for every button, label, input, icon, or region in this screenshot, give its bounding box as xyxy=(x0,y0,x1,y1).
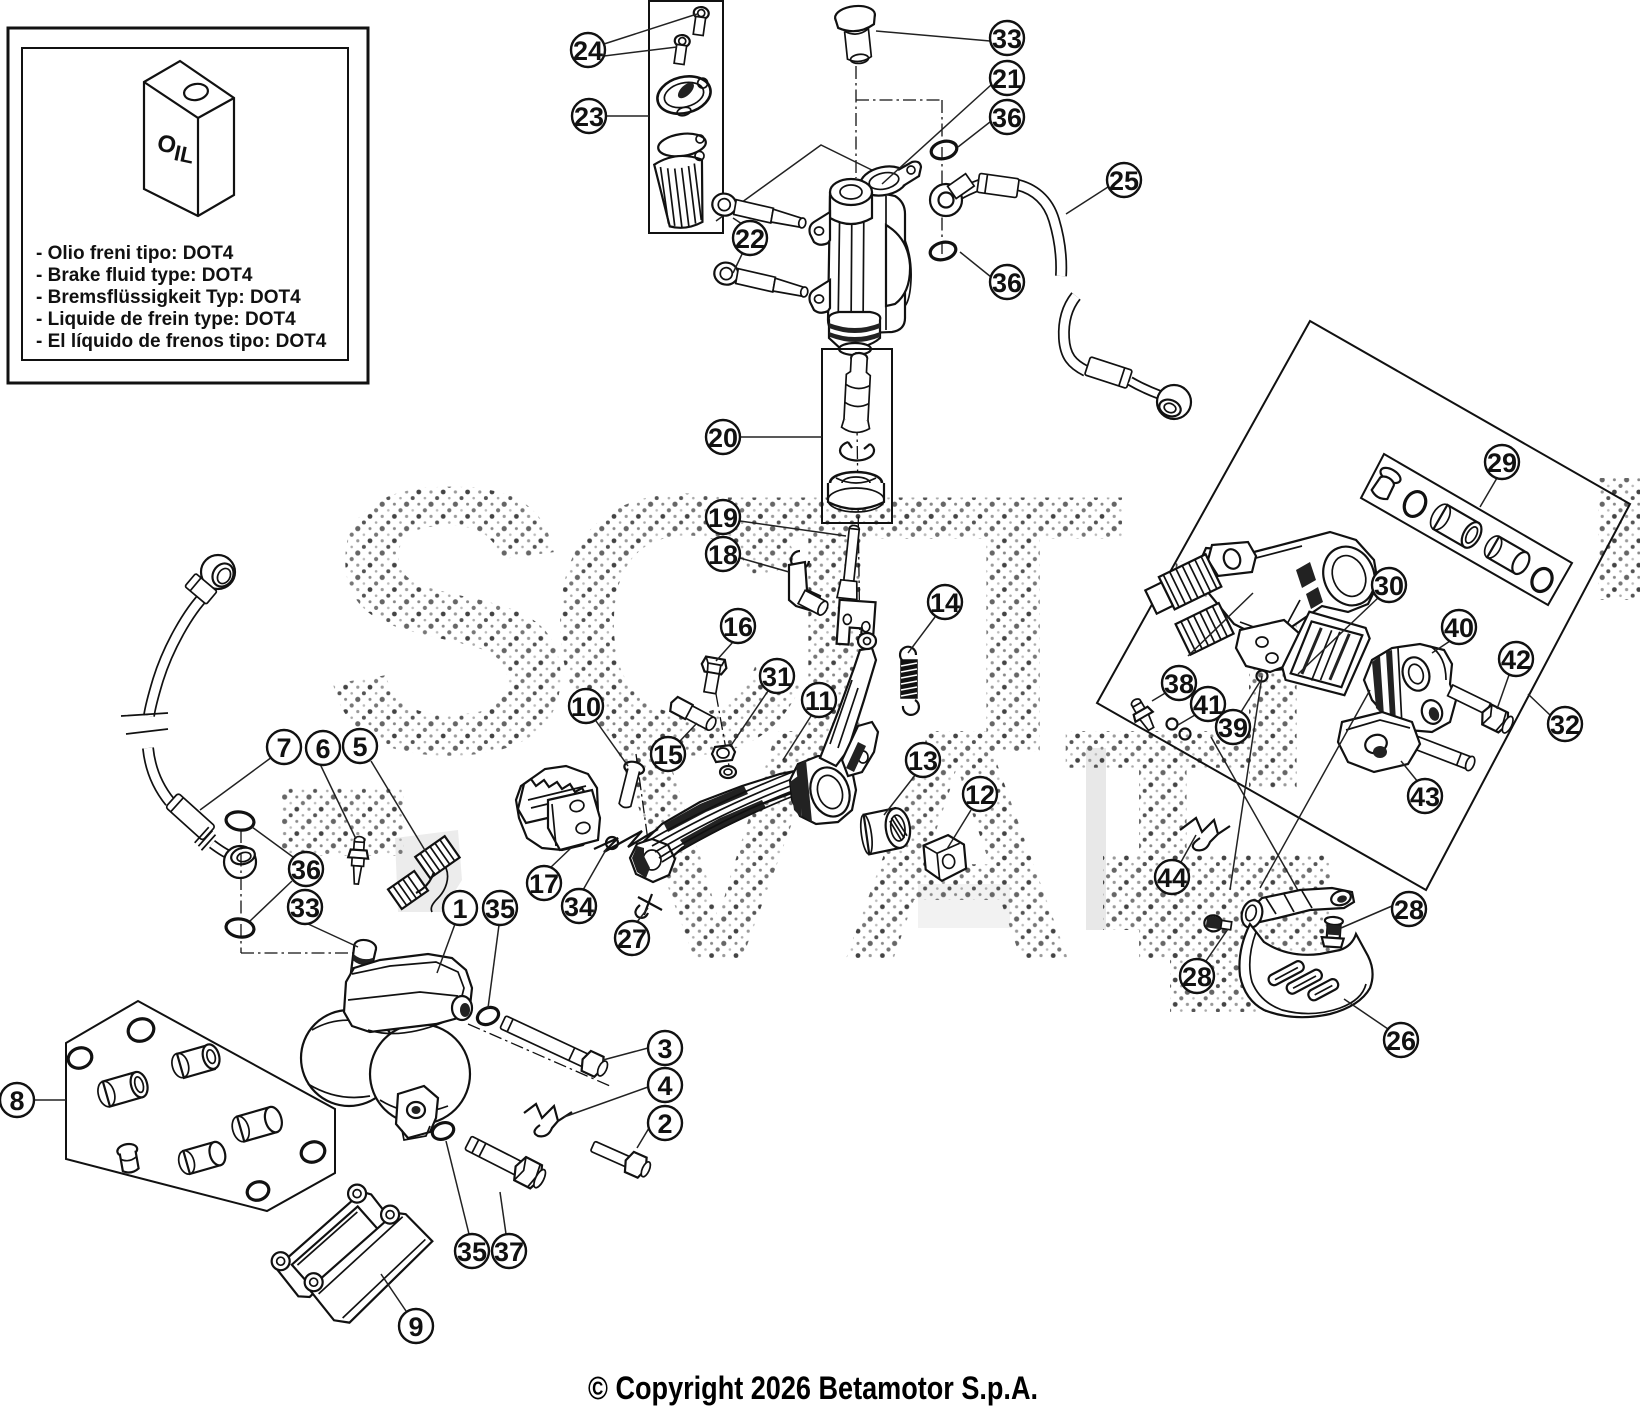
svg-text:27: 27 xyxy=(617,924,647,954)
svg-text:- El líquido de frenos tipo: D: - El líquido de frenos tipo: DOT4 xyxy=(36,331,327,352)
svg-text:© Copyright 2026 Betamotor S.p: © Copyright 2026 Betamotor S.p.A. xyxy=(588,1370,1038,1406)
svg-text:18: 18 xyxy=(708,540,738,570)
svg-text:28: 28 xyxy=(1182,962,1212,992)
svg-text:35: 35 xyxy=(485,894,515,924)
svg-text:20: 20 xyxy=(708,423,738,453)
svg-text:10: 10 xyxy=(571,692,601,722)
svg-text:30: 30 xyxy=(1374,571,1404,601)
svg-text:4: 4 xyxy=(657,1071,672,1101)
svg-text:15: 15 xyxy=(653,740,683,770)
svg-text:16: 16 xyxy=(723,612,753,642)
svg-text:31: 31 xyxy=(762,662,792,692)
svg-text:8: 8 xyxy=(9,1086,24,1116)
svg-text:3: 3 xyxy=(657,1034,672,1064)
svg-text:- Olio freni tipo: DOT4: - Olio freni tipo: DOT4 xyxy=(36,243,234,264)
svg-text:28: 28 xyxy=(1394,895,1424,925)
svg-text:42: 42 xyxy=(1501,645,1531,675)
svg-text:39: 39 xyxy=(1218,713,1248,743)
svg-text:21: 21 xyxy=(992,64,1022,94)
svg-text:5: 5 xyxy=(352,732,367,762)
svg-text:40: 40 xyxy=(1444,613,1474,643)
svg-text:38: 38 xyxy=(1164,669,1194,699)
svg-text:17: 17 xyxy=(529,869,559,899)
svg-text:13: 13 xyxy=(908,746,938,776)
svg-text:25: 25 xyxy=(1109,166,1139,196)
svg-text:- Bremsflüssigkeit Typ: DOT4: - Bremsflüssigkeit Typ: DOT4 xyxy=(36,287,301,308)
svg-text:1: 1 xyxy=(452,894,467,924)
svg-text:19: 19 xyxy=(708,503,738,533)
svg-text:33: 33 xyxy=(290,893,320,923)
svg-text:43: 43 xyxy=(1410,782,1440,812)
svg-text:34: 34 xyxy=(564,892,594,922)
svg-text:2: 2 xyxy=(657,1109,672,1139)
svg-text:29: 29 xyxy=(1487,448,1517,478)
svg-text:7: 7 xyxy=(276,733,291,763)
svg-text:32: 32 xyxy=(1550,710,1580,740)
svg-text:9: 9 xyxy=(408,1312,423,1342)
svg-text:37: 37 xyxy=(494,1237,524,1267)
svg-text:33: 33 xyxy=(992,24,1022,54)
svg-text:36: 36 xyxy=(992,268,1022,298)
svg-text:14: 14 xyxy=(930,588,960,618)
svg-text:6: 6 xyxy=(315,734,330,764)
svg-text:11: 11 xyxy=(805,686,834,716)
svg-text:22: 22 xyxy=(735,224,765,254)
svg-text:36: 36 xyxy=(992,103,1022,133)
svg-text:35: 35 xyxy=(457,1237,487,1267)
svg-text:- Brake fluid type: DOT4: - Brake fluid type: DOT4 xyxy=(36,265,253,286)
svg-text:44: 44 xyxy=(1157,863,1187,893)
svg-text:23: 23 xyxy=(574,102,604,132)
svg-text:24: 24 xyxy=(573,36,603,66)
svg-text:S: S xyxy=(322,408,575,833)
svg-text:36: 36 xyxy=(291,855,321,885)
svg-text:12: 12 xyxy=(965,780,995,810)
svg-text:26: 26 xyxy=(1386,1026,1416,1056)
svg-text:- Liquide de frein type: DOT4: - Liquide de frein type: DOT4 xyxy=(36,309,296,330)
